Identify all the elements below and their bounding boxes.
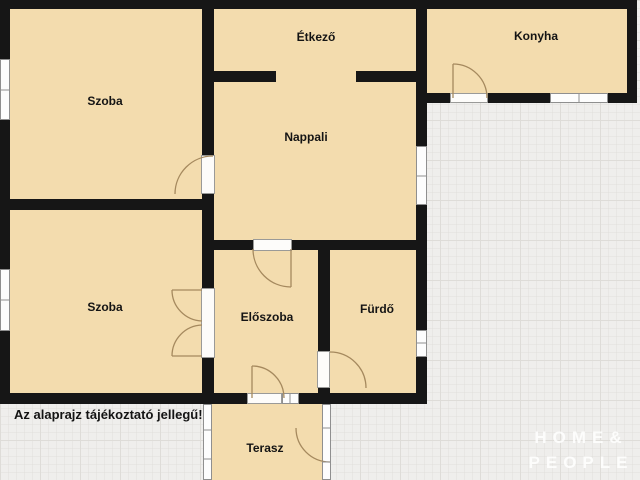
watermark-line-1: HOME& (534, 428, 627, 448)
wall-dining-living-left (202, 71, 276, 82)
wall-hallway-top (202, 240, 427, 250)
terrace-rail-right (322, 404, 331, 480)
window-bathroom-right (416, 330, 427, 357)
room-label-eloszoba: Előszoba (241, 310, 294, 324)
wall-bedroom-divider (0, 199, 214, 210)
door-opening-kitchen (450, 93, 488, 103)
room-label-terasz: Terasz (246, 441, 283, 455)
watermark-line-2: PEOPLE (529, 453, 634, 473)
door-opening-bedroom-top (201, 155, 215, 194)
room-label-konyha: Konyha (514, 29, 558, 43)
door-opening-hallway-living (253, 239, 292, 251)
terrace-rail-left (203, 404, 212, 480)
floorplan-canvas: Szoba Étkező Konyha Nappali Szoba Előszo… (0, 0, 640, 480)
disclaimer-text: Az alaprajz tájékoztató jellegű! (14, 407, 203, 422)
door-opening-bathroom (317, 351, 330, 388)
window-hallway-bottom (282, 393, 299, 404)
door-opening-bedroom-double (201, 288, 215, 358)
door-opening-terrace (247, 393, 282, 404)
room-label-furdo: Fürdő (360, 302, 394, 316)
room-label-szoba-top: Szoba (87, 94, 122, 108)
floor-kitchen-wing (416, 0, 637, 101)
window-bedroom-bottom-left (0, 269, 10, 331)
room-label-etkezo: Étkező (297, 30, 336, 44)
wall-dining-living-right (356, 71, 427, 82)
window-kitchen-bottom (550, 93, 608, 103)
room-label-szoba-bottom: Szoba (87, 300, 122, 314)
window-living-right (416, 146, 427, 205)
wall-bottom (0, 393, 427, 404)
window-bedroom-top-left (0, 59, 10, 120)
room-label-nappali: Nappali (284, 130, 327, 144)
wall-top (0, 0, 637, 9)
wall-kitchen-right (627, 0, 637, 101)
